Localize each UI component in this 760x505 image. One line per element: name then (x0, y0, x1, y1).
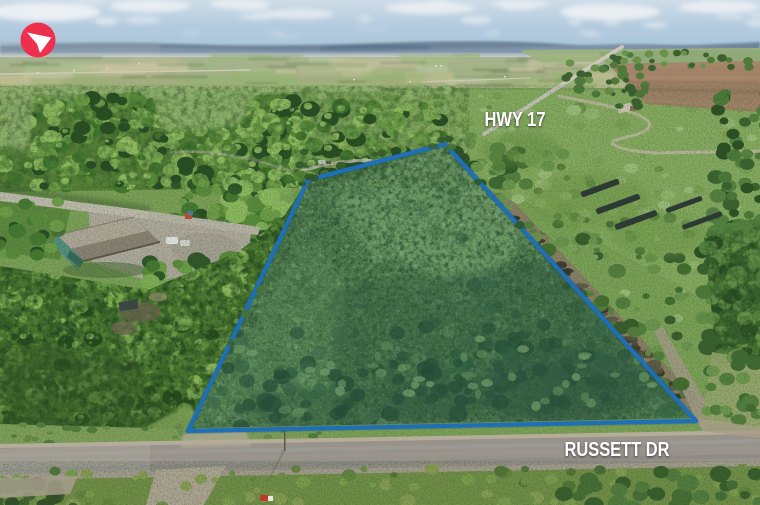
svg-text:HWY 17: HWY 17 (485, 109, 546, 131)
svg-text:RUSSETT DR: RUSSETT DR (565, 439, 670, 461)
